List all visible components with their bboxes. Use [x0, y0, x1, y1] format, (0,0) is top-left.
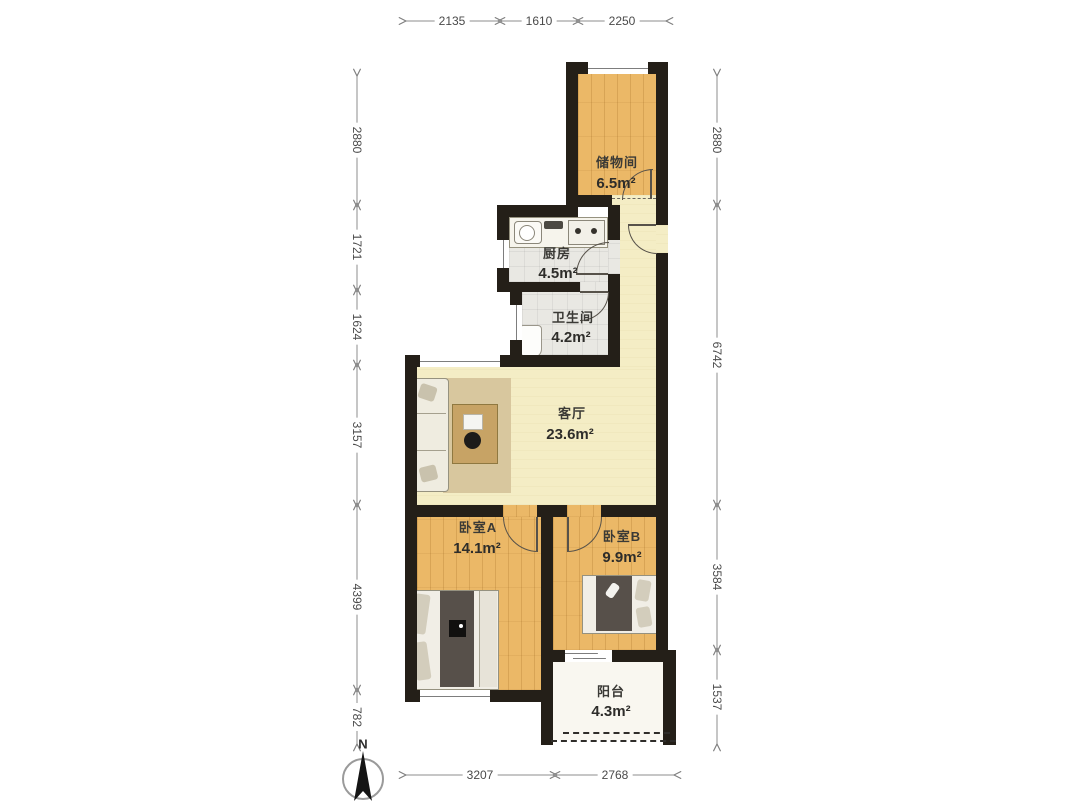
balcony-slider-door — [565, 650, 612, 662]
dim-label-left-2: 1624 — [350, 310, 364, 345]
floor-plan: 储物间 6.5m² 厨房 4.5m² 卫生间 4.2m² 客厅 23.6m² 卧… — [0, 0, 1080, 811]
dim-label-left-5: 782 — [350, 703, 364, 731]
room-label-balcony-name: 阳台 — [597, 681, 625, 701]
kitchen-hood-icon — [544, 221, 563, 229]
bed-a-tray-dot-icon — [459, 624, 463, 628]
dim-label-bottom-1: 2768 — [598, 768, 633, 782]
dim-label-right-2: 3584 — [710, 560, 724, 595]
entry-door-leaf — [628, 224, 656, 226]
kitchen-window — [497, 240, 509, 268]
bed-a-tray-icon — [449, 620, 466, 637]
balcony-floor — [553, 662, 663, 740]
room-label-living-name: 客厅 — [558, 403, 586, 423]
wall-segment — [608, 205, 620, 240]
room-label-storage-area: 6.5m² — [596, 175, 635, 193]
wall-segment — [612, 650, 668, 662]
wall-segment — [656, 253, 668, 662]
dim-label-top-1: 1610 — [522, 14, 557, 28]
wall-segment — [601, 505, 668, 517]
dim-label-right-0: 2880 — [710, 123, 724, 158]
wall-segment — [566, 62, 578, 207]
balcony-open-edge-dashed — [551, 740, 676, 742]
storage-window — [588, 62, 648, 74]
dim-label-bottom-0: 3207 — [463, 768, 498, 782]
wall-segment — [497, 205, 578, 217]
room-label-storage-name: 储物间 — [596, 152, 638, 172]
room-label-bathroom-area: 4.2m² — [551, 329, 590, 347]
stove-burner-icon — [591, 228, 597, 234]
bathroom-door-leaf — [580, 291, 608, 293]
bed-a-footer — [479, 591, 497, 687]
sofa-cushion-line — [413, 413, 446, 414]
room-label-kitchen-name: 厨房 — [543, 243, 571, 263]
bedroom-a-door-leaf — [536, 517, 538, 551]
room-label-bedroom-a-name: 卧室A — [459, 517, 497, 537]
wall-segment — [541, 650, 553, 745]
wall-segment — [608, 274, 620, 367]
wall-segment — [663, 650, 676, 745]
dim-label-left-0: 2880 — [350, 123, 364, 158]
room-label-kitchen-area: 4.5m² — [538, 265, 577, 283]
wall-segment — [656, 62, 668, 225]
table-laptop-icon — [463, 414, 483, 430]
table-kettle-icon — [464, 432, 481, 449]
dim-label-right-3: 1537 — [710, 680, 724, 715]
kitchen-door-leaf — [576, 273, 608, 275]
bedroom-a-door-gap — [503, 505, 537, 517]
dim-label-left-3: 3157 — [350, 418, 364, 453]
toilet — [519, 325, 542, 358]
living-room-window — [420, 355, 500, 367]
bathroom-window — [510, 305, 522, 340]
kitchen-stove — [568, 220, 605, 245]
room-label-bedroom-b-area: 9.9m² — [602, 549, 641, 567]
room-label-bedroom-a-area: 14.1m² — [453, 540, 501, 558]
dim-label-left-1: 1721 — [350, 230, 364, 265]
room-label-bathroom-name: 卫生间 — [552, 307, 594, 327]
kitchen-sink-basin-icon — [519, 225, 535, 241]
bedroom-a-window — [420, 690, 490, 702]
dim-label-top-2: 2250 — [605, 14, 640, 28]
wall-segment — [510, 355, 620, 367]
wall-segment — [405, 355, 417, 702]
entry-door-gap — [656, 225, 668, 253]
room-label-living-area: 23.6m² — [546, 426, 594, 444]
sofa-cushion-line — [413, 450, 446, 451]
dim-label-left-4: 4399 — [350, 580, 364, 615]
dim-label-right-1: 6742 — [710, 338, 724, 373]
balcony-open-edge-dashed — [563, 732, 670, 734]
room-label-bedroom-b-name: 卧室B — [603, 526, 641, 546]
bed-a-duvet — [440, 591, 474, 687]
bedroom-b-door-gap — [567, 505, 601, 517]
room-label-balcony-area: 4.3m² — [591, 703, 630, 721]
storage-door-leaf — [650, 169, 652, 199]
dim-label-top-0: 2135 — [435, 14, 470, 28]
wall-segment — [405, 505, 503, 517]
bedroom-b-door-leaf — [567, 517, 569, 551]
kitchen-door-gap — [608, 240, 620, 274]
compass-icon — [343, 751, 383, 801]
compass-north-label: N — [358, 737, 367, 752]
stove-burner-icon — [575, 228, 581, 234]
